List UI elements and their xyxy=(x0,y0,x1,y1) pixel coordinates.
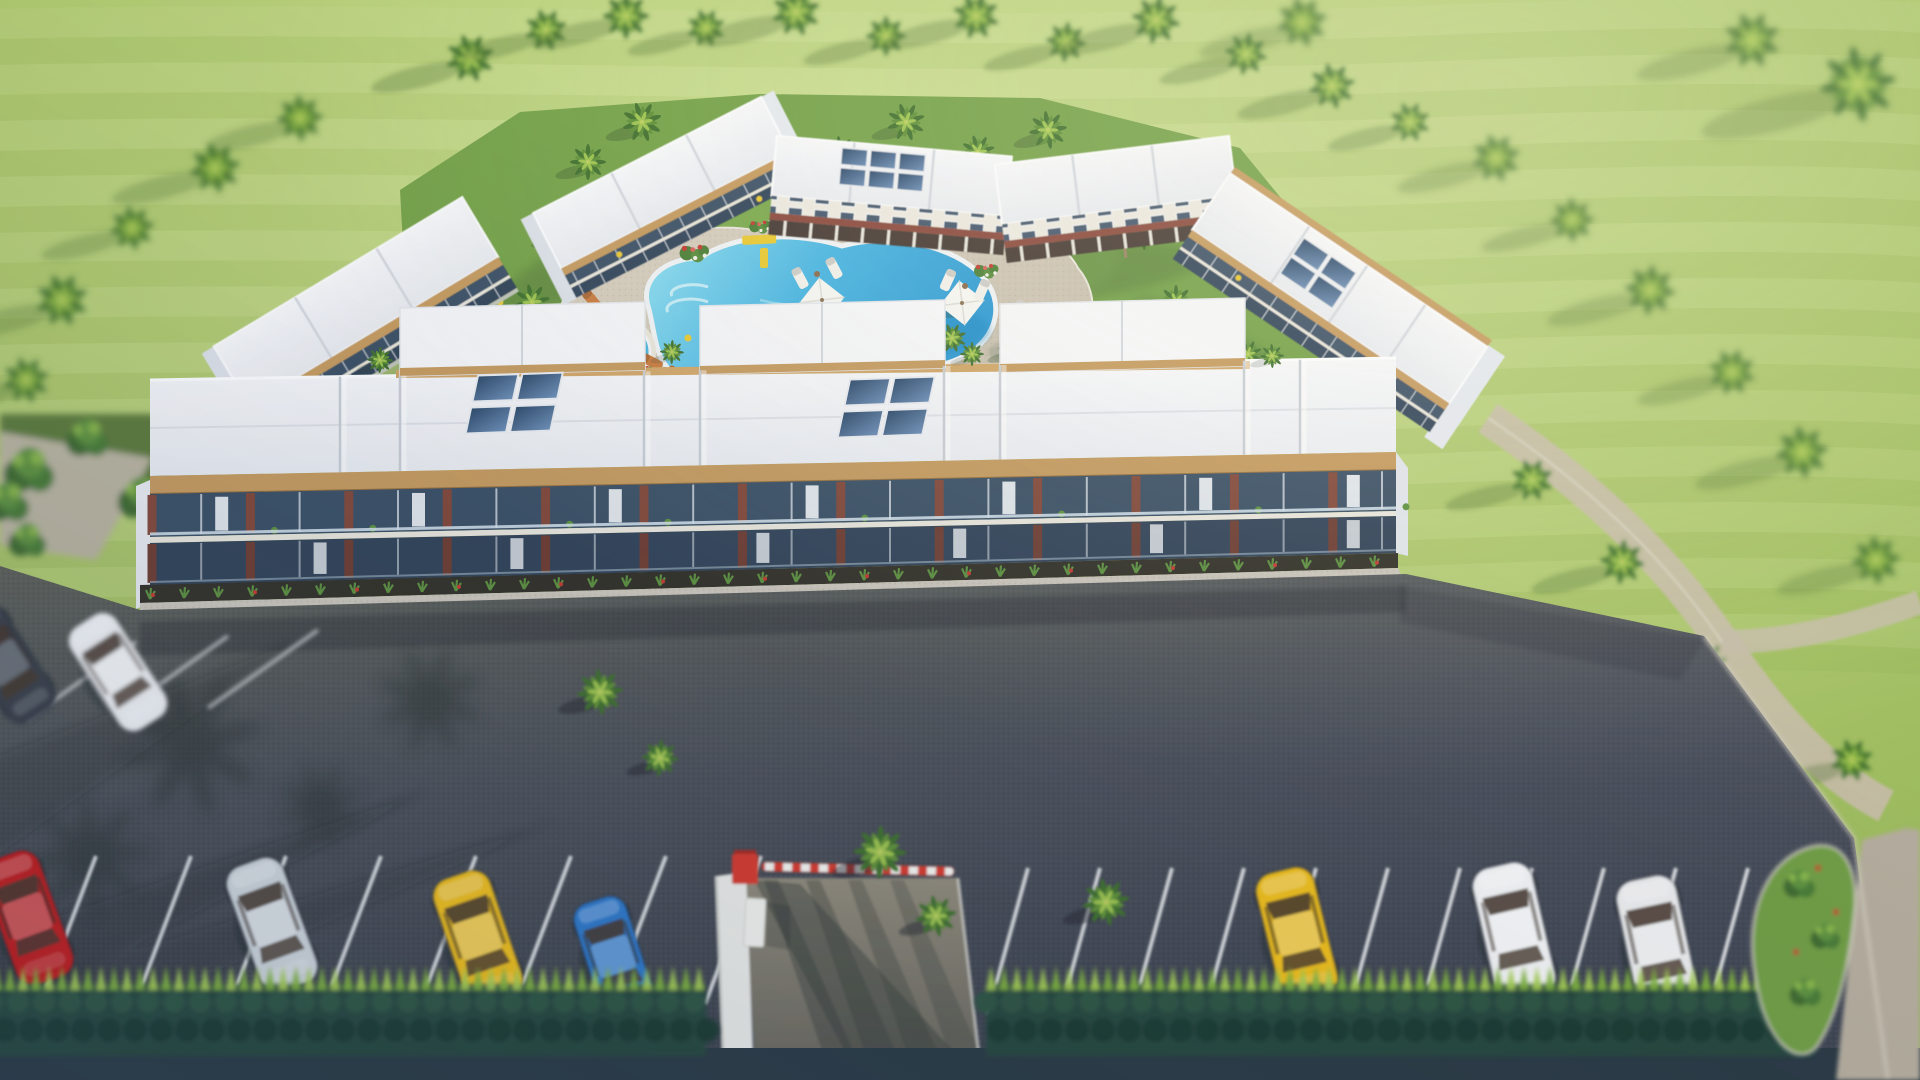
aerial-render xyxy=(0,0,1920,1080)
shadow-haze xyxy=(0,0,1920,1080)
scene-canvas xyxy=(0,0,1920,1080)
